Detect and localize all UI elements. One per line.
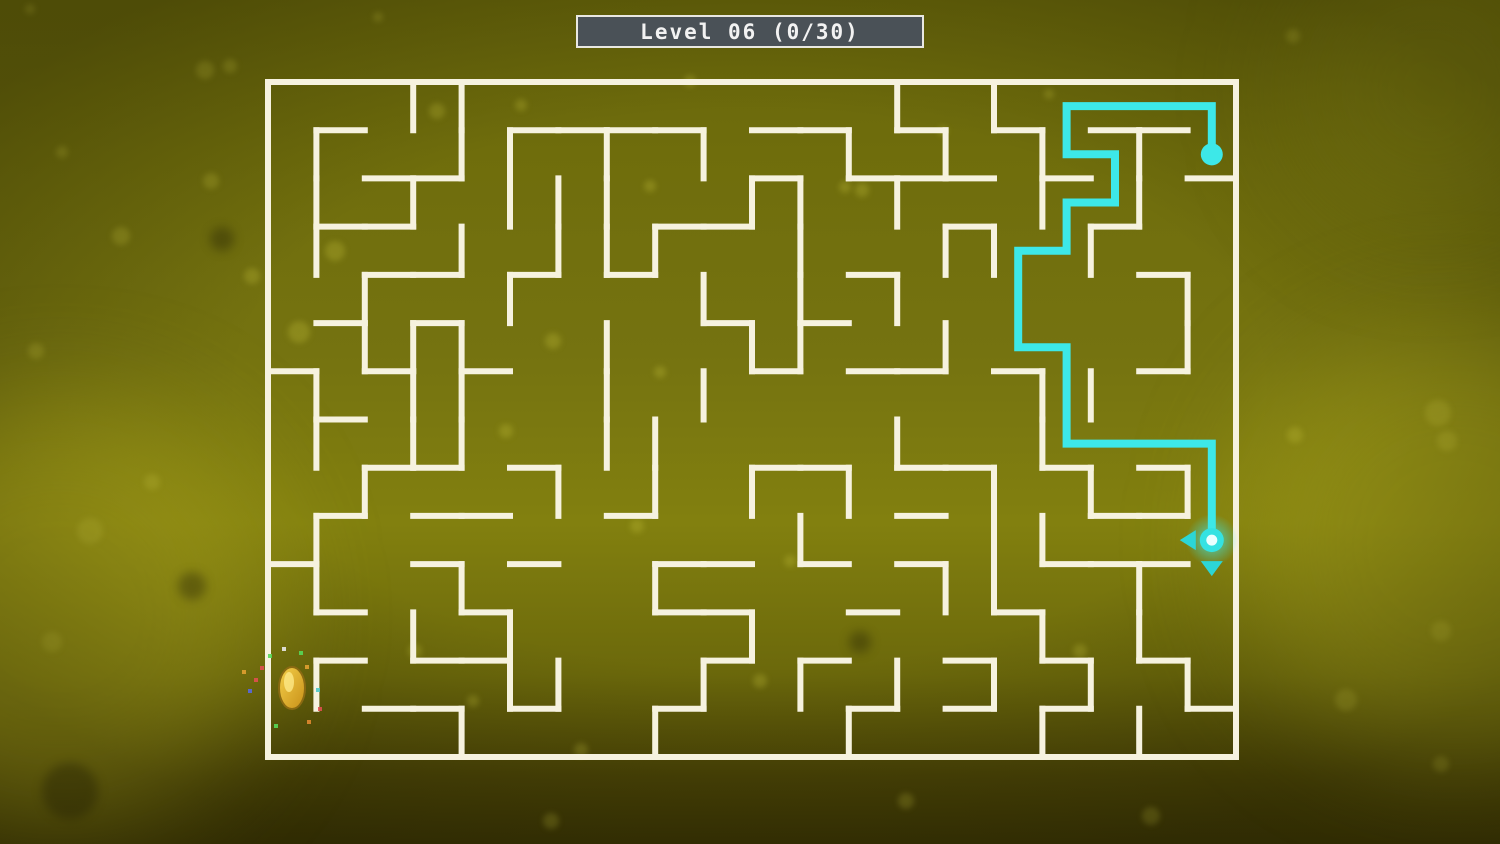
maze-walls xyxy=(265,79,1239,760)
sparkle-particle xyxy=(242,670,246,674)
sparkle-particle xyxy=(254,678,258,682)
sparkle-particle xyxy=(274,724,278,728)
maze-board[interactable] xyxy=(0,0,1500,844)
path-start-dot xyxy=(1201,143,1223,165)
sparkle-particle xyxy=(268,654,272,658)
arrow-down-icon[interactable] xyxy=(1201,561,1223,576)
sparkle-particle xyxy=(248,689,252,693)
level-label: Level 06 (0/30) xyxy=(640,20,860,44)
solution-path xyxy=(1018,106,1223,540)
sparkle-particle xyxy=(318,707,322,711)
sparkle-particle xyxy=(316,688,320,692)
sparkle-particle xyxy=(307,720,311,724)
game-screen: Level 06 (0/30) xyxy=(0,0,1500,844)
title-bar: Level 06 (0/30) xyxy=(576,15,924,48)
sparkle-particle xyxy=(282,647,286,651)
sparkle-particle xyxy=(260,666,264,670)
sparkle-particle xyxy=(305,665,309,669)
sparkle-particle xyxy=(299,651,303,655)
coin-target[interactable] xyxy=(242,647,322,728)
